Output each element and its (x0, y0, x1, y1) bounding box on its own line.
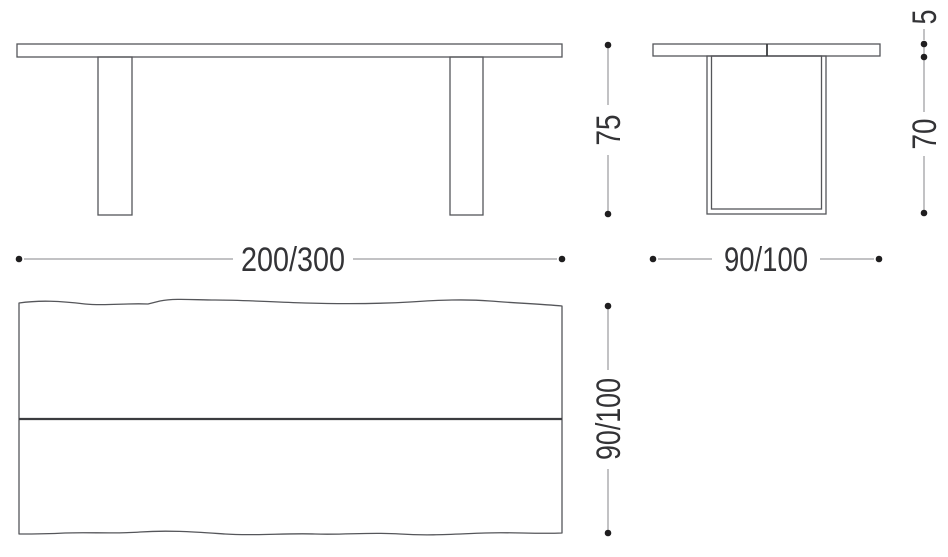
top-view (19, 299, 562, 535)
dot-top-depth-bottom (605, 530, 612, 537)
table-dimension-drawing: 200/300 90/100 75 90/100 5 70 (0, 0, 948, 557)
front-view (17, 44, 562, 215)
side-height-dimension-label: 70 (906, 119, 944, 150)
top-view-slab-outline (19, 299, 562, 535)
front-width-dimension-label: 200/300 (241, 241, 345, 279)
technical-drawing-canvas: 200/300 90/100 75 90/100 5 70 (0, 0, 948, 557)
side-view (653, 44, 880, 214)
dot-side-height-bottom (921, 210, 928, 217)
dot-side-width-left (650, 256, 657, 263)
dot-thickness-bottom (921, 54, 928, 61)
dot-front-height-top (605, 42, 612, 49)
top-depth-dimension-label: 90/100 (590, 378, 628, 460)
dot-side-width-right (876, 256, 883, 263)
dot-front-width-right (559, 256, 566, 263)
front-view-left-leg (98, 57, 132, 215)
side-view-leg-panel-outer (707, 56, 826, 214)
front-view-right-leg (450, 57, 483, 215)
dot-thickness-top (921, 41, 928, 48)
side-width-dimension-label: 90/100 (724, 241, 808, 279)
dot-front-height-bottom (605, 211, 612, 218)
side-view-leg-panel-inner (712, 56, 822, 209)
dot-front-width-left (16, 256, 23, 263)
tabletop-thickness-dimension-label: 5 (906, 10, 944, 25)
front-view-tabletop (17, 44, 562, 57)
dot-top-depth-top (605, 303, 612, 310)
front-height-dimension-label: 75 (590, 115, 628, 146)
